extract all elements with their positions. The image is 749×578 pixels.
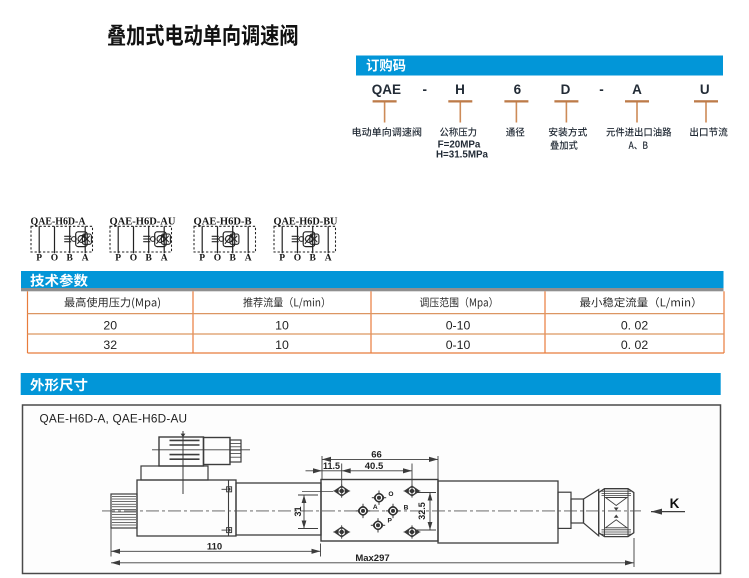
- svg-text:32: 32: [103, 338, 117, 352]
- svg-text:A: A: [325, 253, 332, 263]
- svg-text:QAE: QAE: [372, 82, 401, 97]
- svg-text:B: B: [404, 504, 409, 511]
- svg-text:A: A: [161, 253, 168, 263]
- svg-text:K: K: [670, 496, 680, 511]
- svg-text:10: 10: [275, 319, 289, 333]
- svg-text:20: 20: [103, 319, 117, 333]
- svg-text:110: 110: [207, 542, 222, 553]
- svg-text:31: 31: [293, 506, 303, 516]
- svg-text:QAE-H6D-B: QAE-H6D-B: [194, 216, 252, 227]
- svg-text:A: A: [373, 504, 378, 511]
- svg-text:O: O: [51, 253, 58, 263]
- svg-text:0-10: 0-10: [446, 338, 471, 352]
- svg-text:0. 02: 0. 02: [621, 319, 649, 333]
- svg-text:O: O: [388, 491, 393, 498]
- svg-text:32.5: 32.5: [417, 502, 427, 520]
- svg-text:A: A: [82, 253, 89, 263]
- svg-text:B: B: [67, 253, 74, 263]
- svg-text:66: 66: [371, 450, 382, 461]
- svg-text:0-10: 0-10: [446, 319, 471, 333]
- svg-text:P: P: [36, 253, 42, 263]
- svg-text:B: B: [310, 253, 317, 263]
- svg-text:P: P: [115, 253, 121, 263]
- svg-text:QAE-H6D-BU: QAE-H6D-BU: [274, 216, 338, 227]
- svg-text:D: D: [561, 82, 571, 97]
- svg-text:P: P: [387, 518, 392, 525]
- svg-text:QAE-H6D-A: QAE-H6D-A: [31, 216, 86, 227]
- svg-text:O: O: [294, 253, 301, 263]
- svg-text:-: -: [423, 82, 428, 97]
- svg-text:O: O: [130, 253, 137, 263]
- svg-text:11.5: 11.5: [323, 461, 340, 471]
- svg-text:6: 6: [514, 82, 522, 97]
- svg-text:0. 02: 0. 02: [621, 338, 649, 352]
- svg-text:QAE-H6D-A, QAE-H6D-AU: QAE-H6D-A, QAE-H6D-AU: [40, 412, 188, 426]
- svg-text:P: P: [279, 253, 285, 263]
- svg-text:H: H: [455, 82, 465, 97]
- svg-text:Max297: Max297: [355, 553, 389, 564]
- svg-text:B: B: [230, 253, 237, 263]
- svg-text:40.5: 40.5: [365, 461, 384, 472]
- svg-text:A: A: [245, 253, 252, 263]
- svg-text:U: U: [700, 82, 710, 97]
- svg-text:A: A: [632, 82, 642, 97]
- svg-text:QAE-H6D-AU: QAE-H6D-AU: [110, 216, 176, 227]
- svg-text:B: B: [146, 253, 153, 263]
- svg-text:10: 10: [275, 338, 289, 352]
- svg-text:O: O: [214, 253, 221, 263]
- svg-text:P: P: [199, 253, 205, 263]
- svg-text:-: -: [599, 82, 604, 97]
- svg-text:H=31.5MPa: H=31.5MPa: [436, 150, 489, 161]
